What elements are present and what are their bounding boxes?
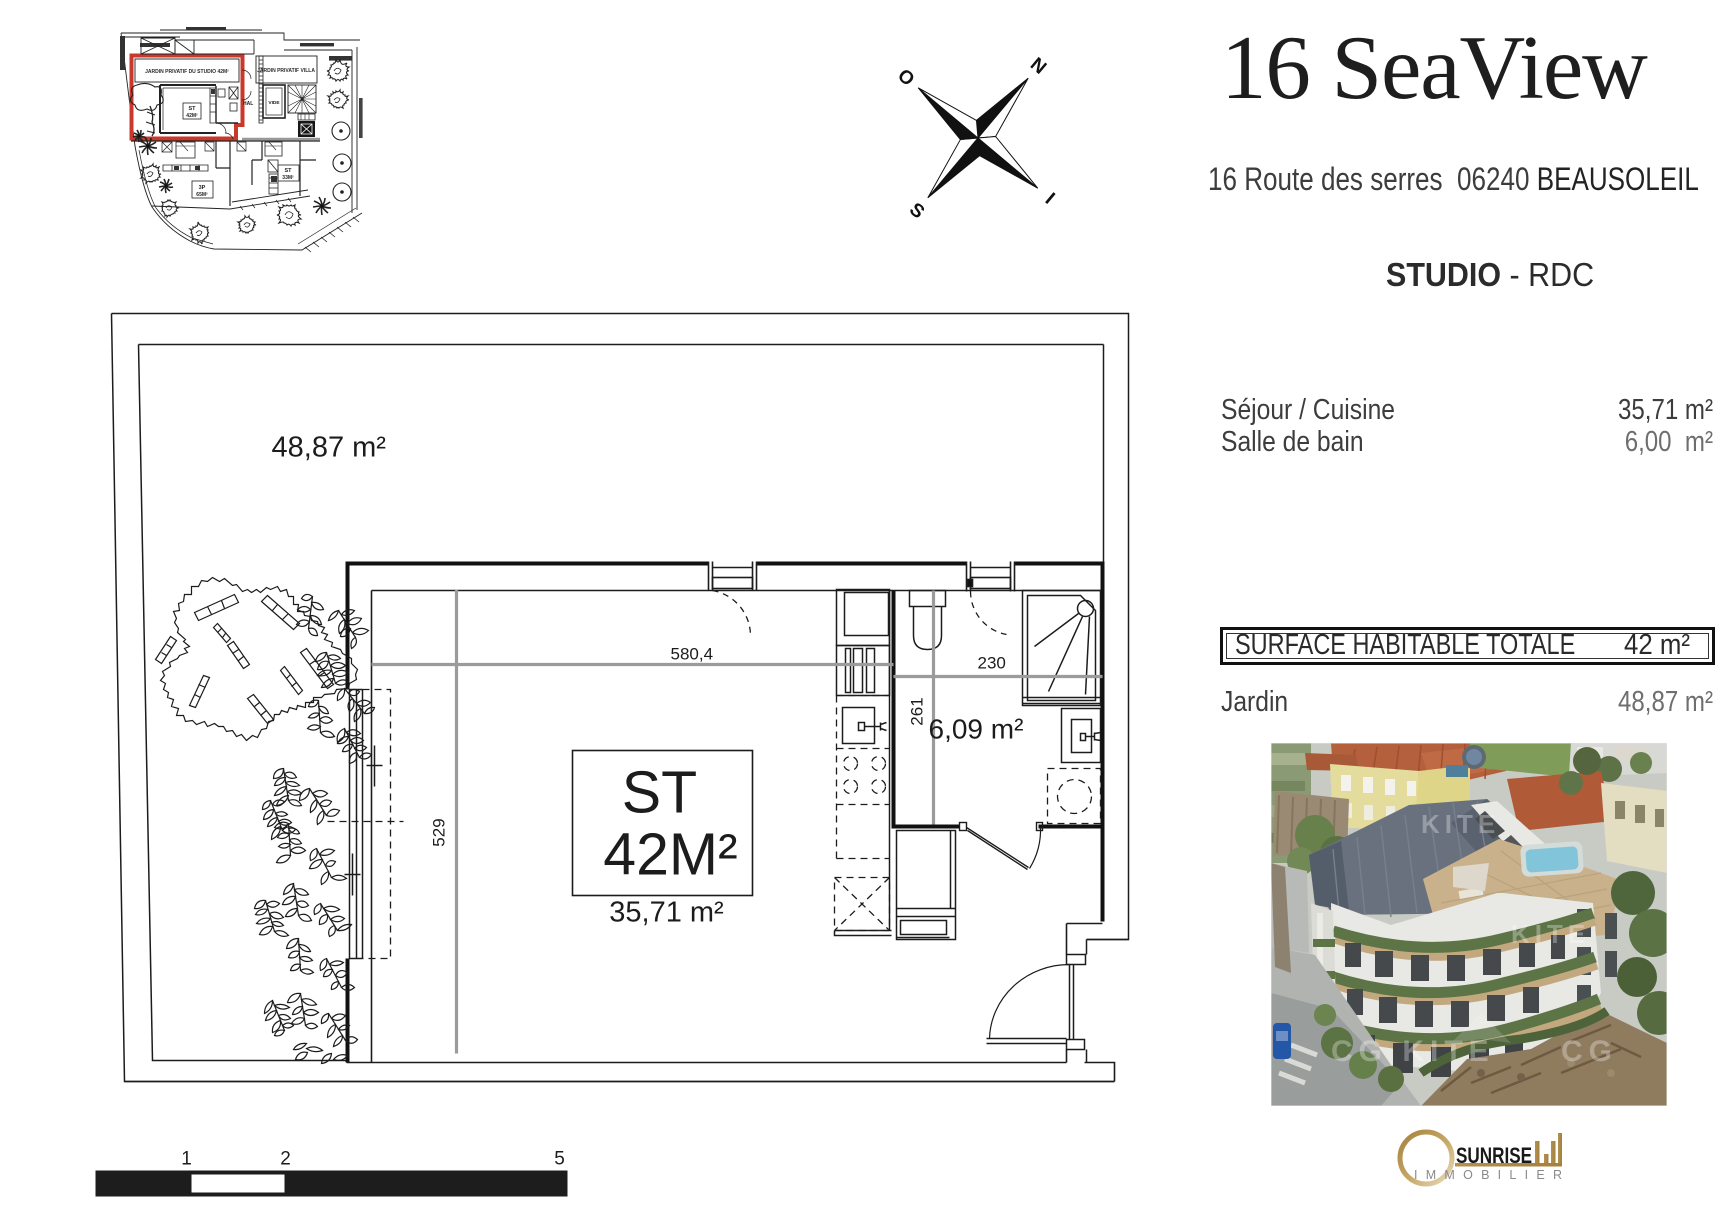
svg-text:ST: ST — [622, 760, 697, 826]
svg-text:ST: ST — [188, 106, 196, 112]
svg-text:KITE: KITE — [1421, 809, 1500, 839]
svg-text:529: 529 — [430, 818, 449, 846]
svg-text:230: 230 — [978, 654, 1006, 673]
svg-text:S: S — [905, 199, 928, 223]
svg-text:VIDE: VIDE — [268, 100, 280, 106]
svg-text:O: O — [893, 65, 918, 91]
svg-text:2: 2 — [280, 1149, 291, 1170]
svg-text:33M²: 33M² — [282, 175, 294, 181]
svg-text:42M²: 42M² — [603, 822, 737, 888]
svg-text:KITE: KITE — [1511, 919, 1590, 949]
svg-text:3P: 3P — [199, 185, 206, 191]
svg-text:ST: ST — [284, 168, 292, 174]
svg-text:CG: CG — [1561, 1035, 1618, 1068]
svg-text:HAL: HAL — [243, 101, 253, 107]
svg-text:580,4: 580,4 — [671, 645, 714, 664]
svg-text:261: 261 — [908, 697, 927, 725]
svg-text:6,09 m²: 6,09 m² — [929, 714, 1024, 745]
svg-text:42M²: 42M² — [186, 113, 198, 119]
svg-text:I: I — [1041, 189, 1059, 208]
svg-text:65M²: 65M² — [196, 192, 208, 198]
svg-text:48,87 m²: 48,87 m² — [272, 432, 387, 464]
svg-text:1: 1 — [181, 1149, 192, 1170]
svg-text:N: N — [1026, 54, 1050, 79]
svg-text:JARDIN PRIVATIF DU STUDIO 42M²: JARDIN PRIVATIF DU STUDIO 42M² — [145, 69, 229, 75]
svg-text:5: 5 — [554, 1149, 565, 1170]
svg-text:JARDIN PRIVATIF VILLA: JARDIN PRIVATIF VILLA — [257, 68, 315, 74]
svg-text:35,71 m²: 35,71 m² — [609, 897, 724, 929]
